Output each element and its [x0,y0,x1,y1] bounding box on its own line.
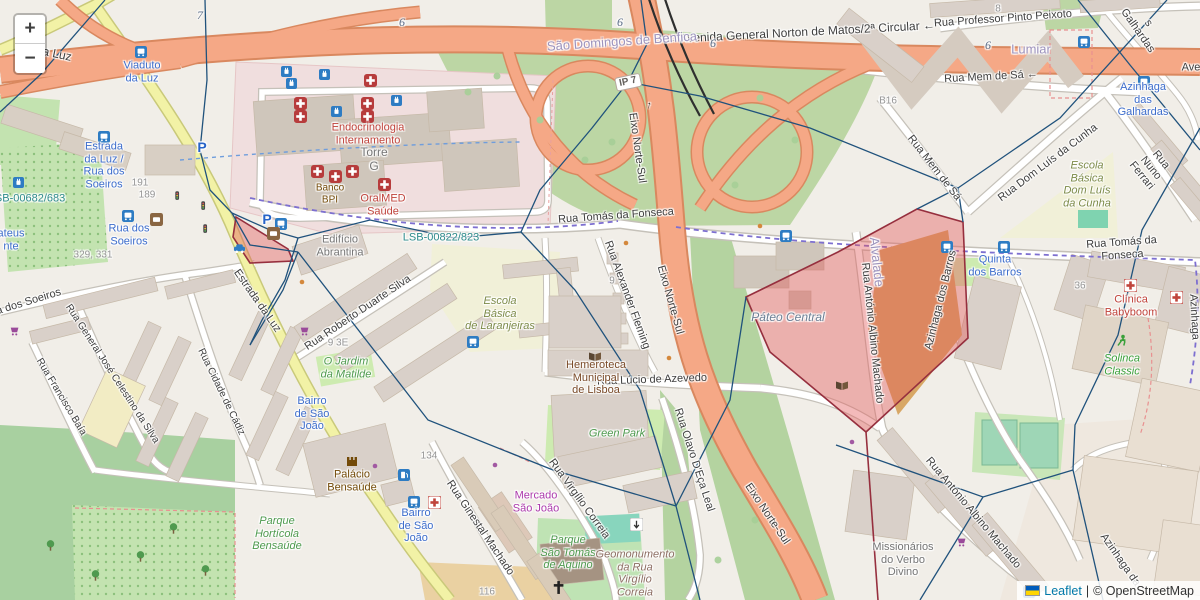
bus-stop-icon [1078,36,1090,48]
map-tiles [0,0,1200,600]
zoom-in-button[interactable]: + [15,15,45,44]
castle-icon [347,457,357,466]
zoom-control: + − [13,13,47,75]
ukraine-flag-icon [1025,585,1040,596]
bus-stop-icon [780,230,792,242]
charging-station-icon [391,95,402,106]
poi-dot [758,224,763,229]
hospital-icon [294,110,307,123]
fuel-icon [398,469,410,481]
hospital-icon [361,110,374,123]
bus-stop-icon [408,496,420,508]
hospital-icon [346,165,359,178]
hospital-icon [378,178,391,191]
sign-icon [630,518,643,531]
attribution-separator: | [1086,584,1089,598]
hospital-icon [329,170,342,183]
map-canvas[interactable]: ← Avenida General Norton de Matos/2ª Cir… [0,0,1200,600]
bus-stop-icon [998,241,1010,253]
bus-stop-icon [98,131,110,143]
pharmacy-icon [428,496,441,509]
clinic-cross-icon [1170,291,1183,304]
charging-station-icon [331,106,342,117]
bus-stop-icon [1138,76,1150,88]
hospital-icon [364,74,377,87]
traffic-signal-icon [203,224,207,233]
attribution-bar: Leaflet | © OpenStreetMap [1017,581,1200,600]
bus-stop-icon [467,336,479,348]
traffic-signal-icon [175,191,179,200]
clinic-cross-icon [1124,279,1137,292]
charging-station-icon [13,177,24,188]
poi-dot [850,440,855,445]
shop-icon [150,213,163,226]
poi-dot [667,356,672,361]
hospital-icon [294,97,307,110]
poi-dot [624,241,629,246]
bus-stop-icon [135,46,147,58]
charging-station-icon [281,66,292,77]
leaflet-link[interactable]: Leaflet [1044,584,1082,598]
bus-stop-icon [941,241,953,253]
hospital-icon [311,165,324,178]
charging-station-icon [319,69,330,80]
poi-dot [493,463,498,468]
hospital-icon [361,97,374,110]
poi-dot [373,464,378,469]
traffic-signal-icon [201,201,205,210]
zoom-out-button[interactable]: − [15,44,45,73]
charging-station-icon [286,78,297,89]
bus-stop-icon [122,210,134,222]
osm-attribution[interactable]: © OpenStreetMap [1093,584,1194,598]
shop-icon [267,227,280,240]
poi-dot [300,280,305,285]
